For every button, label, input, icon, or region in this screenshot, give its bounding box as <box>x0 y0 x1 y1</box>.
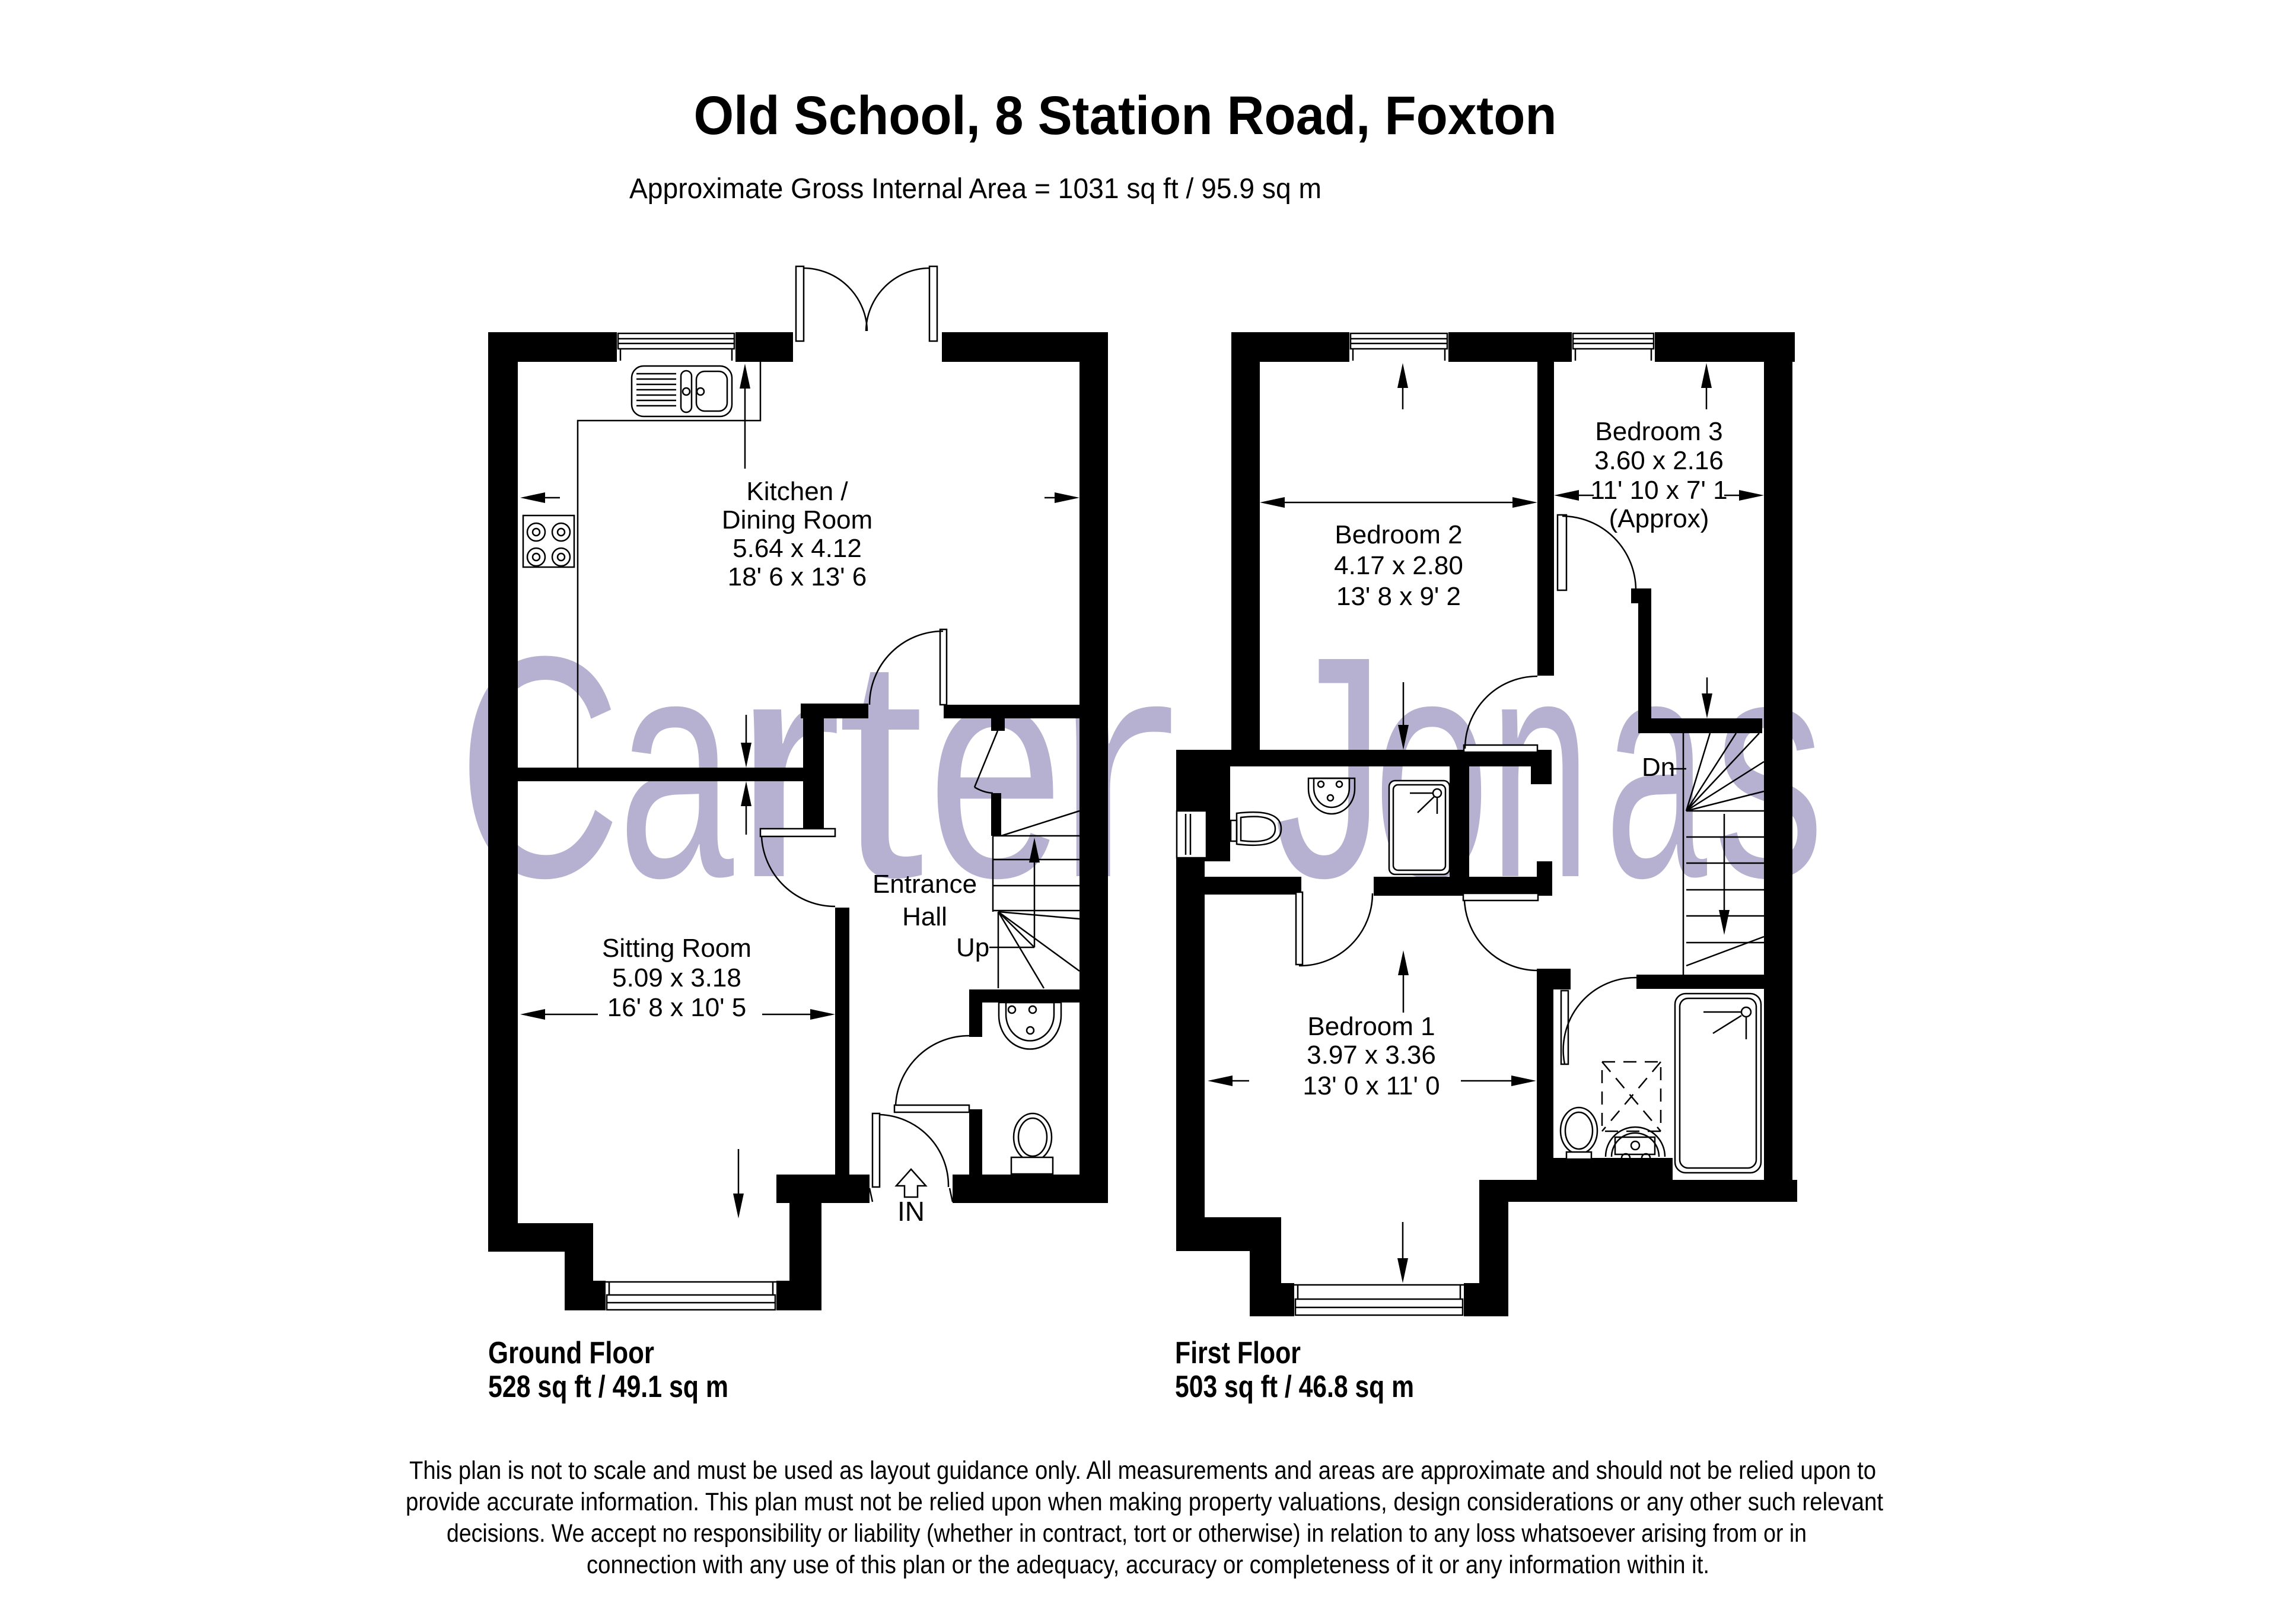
svg-text:16' 8 x 10' 5: 16' 8 x 10' 5 <box>607 993 747 1022</box>
svg-text:First Floor: First Floor <box>1175 1336 1301 1370</box>
svg-text:IN: IN <box>897 1196 925 1227</box>
svg-text:r: r <box>731 590 842 943</box>
svg-text:r: r <box>1050 590 1177 943</box>
svg-text:Kitchen /: Kitchen / <box>746 477 848 506</box>
svg-text:connection with any use of thi: connection with any use of this plan or … <box>587 1551 1709 1579</box>
svg-text:Dn: Dn <box>1642 753 1675 782</box>
svg-text:Dining Room: Dining Room <box>722 505 872 534</box>
svg-text:528 sq ft / 49.1 sq m: 528 sq ft / 49.1 sq m <box>488 1370 728 1404</box>
svg-text:Bedroom 3: Bedroom 3 <box>1595 417 1722 446</box>
svg-text:Old School, 8 Station Road, Fo: Old School, 8 Station Road, Foxton <box>694 85 1557 146</box>
svg-text:provide accurate information.: provide accurate information. This plan … <box>406 1488 1883 1516</box>
svg-text:13' 0 x 11' 0: 13' 0 x 11' 0 <box>1303 1071 1440 1100</box>
svg-text:C: C <box>458 590 621 943</box>
svg-text:3.97 x 3.36: 3.97 x 3.36 <box>1307 1040 1436 1070</box>
svg-text:4.17 x 2.80: 4.17 x 2.80 <box>1334 551 1463 580</box>
svg-text:Ground Floor: Ground Floor <box>488 1336 654 1370</box>
svg-text:5.64 x 4.12: 5.64 x 4.12 <box>733 534 862 563</box>
svg-text:decisions. We accept no respon: decisions. We accept no responsibility o… <box>447 1519 1807 1548</box>
svg-text:Bedroom 1: Bedroom 1 <box>1307 1012 1435 1041</box>
svg-text:Sitting Room: Sitting Room <box>602 934 751 963</box>
svg-text:5.09 x 3.18: 5.09 x 3.18 <box>612 963 741 992</box>
svg-text:(Approx): (Approx) <box>1609 504 1709 533</box>
svg-text:This plan is not to scale and: This plan is not to scale and must be us… <box>409 1456 1876 1485</box>
svg-text:13' 8 x 9' 2: 13' 8 x 9' 2 <box>1336 582 1461 611</box>
svg-text:Approximate Gross Internal Are: Approximate Gross Internal Area = 1031 s… <box>629 173 1321 205</box>
svg-text:Entrance: Entrance <box>872 870 977 899</box>
svg-text:11' 10 x 7' 1: 11' 10 x 7' 1 <box>1590 476 1727 505</box>
svg-text:a: a <box>618 590 735 943</box>
svg-text:503 sq ft / 46.8 sq m: 503 sq ft / 46.8 sq m <box>1175 1370 1414 1404</box>
svg-text:Up: Up <box>956 933 989 962</box>
svg-text:Hall: Hall <box>902 902 947 931</box>
svg-text:3.60 x 2.16: 3.60 x 2.16 <box>1594 446 1724 475</box>
svg-text:18' 6 x 13' 6: 18' 6 x 13' 6 <box>728 562 867 591</box>
svg-text:Bedroom 2: Bedroom 2 <box>1335 520 1462 549</box>
